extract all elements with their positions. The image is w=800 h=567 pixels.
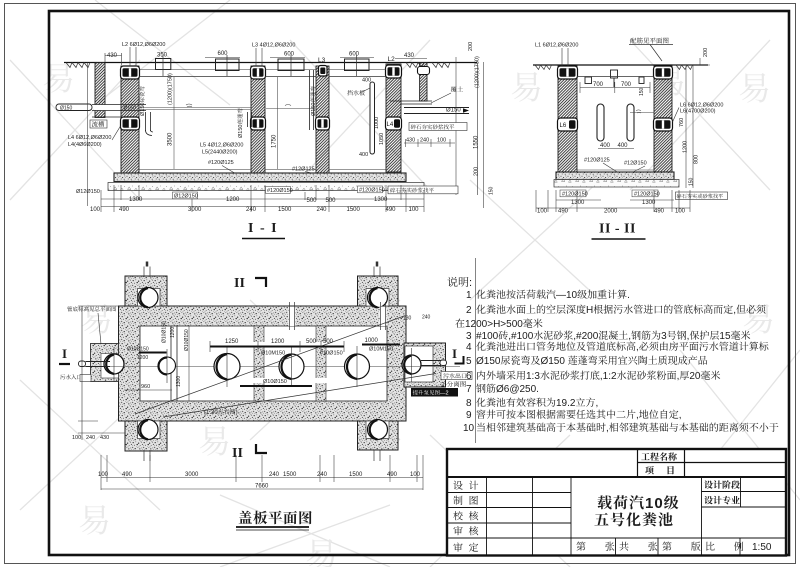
svg-text:1000: 1000 — [374, 117, 380, 129]
svg-text:430: 430 — [406, 138, 415, 144]
svg-text:430: 430 — [107, 53, 118, 59]
svg-text:200: 200 — [703, 48, 709, 57]
svg-text:(1:30: (1:30 — [204, 410, 218, 416]
svg-text:Ø10Ø150: Ø10Ø150 — [162, 321, 168, 343]
svg-text:19.2: 19.2 — [556, 398, 576, 409]
svg-text:Ø12Ø150: Ø12Ø150 — [174, 194, 198, 200]
svg-text:L5(2440Ø200): L5(2440Ø200) — [202, 150, 238, 156]
svg-text:200: 200 — [468, 42, 474, 51]
svg-text:500: 500 — [306, 339, 317, 345]
svg-text:400: 400 — [362, 78, 371, 84]
svg-text:600: 600 — [218, 51, 229, 57]
svg-text:400: 400 — [600, 143, 611, 149]
svg-text:,: , — [636, 342, 639, 353]
svg-text:1550: 1550 — [474, 135, 480, 149]
svg-text:Ø6@250.: Ø6@250. — [496, 384, 539, 395]
svg-text:,#100: ,#100 — [508, 331, 533, 342]
svg-text:350: 350 — [157, 53, 168, 59]
svg-text:3000: 3000 — [188, 207, 202, 213]
svg-text:Ø150: Ø150 — [60, 106, 72, 112]
svg-text:600: 600 — [284, 52, 295, 58]
svg-text:II: II — [232, 446, 243, 461]
svg-text:150: 150 — [489, 186, 495, 195]
svg-text:1500: 1500 — [283, 472, 297, 478]
svg-text:L3: L3 — [318, 57, 326, 64]
svg-text:H: H — [586, 305, 593, 316]
svg-text:240: 240 — [317, 207, 328, 213]
svg-text:800: 800 — [694, 155, 700, 164]
svg-text:100: 100 — [98, 472, 109, 478]
svg-text:,#200: ,#200 — [573, 331, 598, 342]
svg-text:1200: 1200 — [170, 327, 176, 338]
svg-text:,: , — [636, 410, 639, 421]
svg-text:700: 700 — [593, 82, 604, 88]
svg-text:10: 10 — [463, 423, 475, 434]
svg-text:490: 490 — [122, 472, 133, 478]
svg-text:I: I — [62, 346, 67, 361]
svg-text:760: 760 — [679, 118, 685, 127]
svg-text:II: II — [234, 276, 245, 291]
svg-text:#120Ø125: #120Ø125 — [208, 160, 234, 166]
svg-text:.: . — [627, 290, 630, 301]
svg-text:Ø12Ø150: Ø12Ø150 — [76, 189, 100, 195]
svg-text:1500: 1500 — [278, 207, 292, 213]
svg-text:240: 240 — [422, 315, 431, 321]
svg-text:1050: 1050 — [379, 133, 385, 145]
svg-text:490: 490 — [387, 472, 398, 478]
svg-text:490: 490 — [654, 209, 665, 215]
svg-text:6: 6 — [466, 371, 472, 382]
svg-text:,1:2: ,1:2 — [600, 371, 617, 382]
svg-text:,: , — [595, 398, 598, 409]
svg-text:L5 4Ø12,Ø6Ø200: L5 4Ø12,Ø6Ø200 — [200, 143, 243, 149]
svg-text:#120Ø150: #120Ø150 — [634, 192, 660, 198]
svg-text:1200>H>500: 1200>H>500 — [465, 319, 523, 330]
svg-text:#120Ø125: #120Ø125 — [584, 158, 610, 164]
svg-text:100: 100 — [410, 472, 421, 478]
svg-text:Ø150: Ø150 — [446, 108, 461, 114]
svg-text:400: 400 — [618, 143, 629, 149]
svg-text:9: 9 — [466, 410, 472, 421]
svg-text:100: 100 — [675, 209, 686, 215]
svg-text:1200: 1200 — [683, 141, 689, 153]
svg-text:Ø10M150: Ø10M150 — [369, 347, 393, 353]
svg-text:150: 150 — [639, 87, 645, 96]
svg-text:240: 240 — [420, 138, 429, 144]
svg-text:Ø10Ø150: Ø10Ø150 — [127, 347, 149, 353]
svg-text:430: 430 — [100, 435, 109, 441]
svg-text:1300: 1300 — [571, 200, 585, 206]
svg-text:#100: #100 — [476, 331, 499, 342]
svg-text:II - II: II - II — [599, 222, 636, 237]
svg-text:(1200)(1750): (1200)(1750) — [168, 73, 174, 105]
svg-text:,: , — [679, 410, 682, 421]
svg-text:—2: —2 — [440, 391, 449, 397]
svg-text:10: 10 — [645, 495, 664, 512]
svg-text:#120Ø150: #120Ø150 — [562, 192, 588, 198]
svg-text:I - I: I - I — [248, 221, 278, 236]
svg-text:#10Ø150: #10Ø150 — [320, 351, 343, 357]
svg-text:240: 240 — [246, 207, 257, 213]
svg-text:490: 490 — [386, 207, 397, 213]
svg-text:100: 100 — [72, 435, 81, 441]
svg-text:100: 100 — [90, 207, 101, 213]
svg-text:490: 490 — [119, 207, 130, 213]
svg-text:Ø10Ø150: Ø10Ø150 — [263, 379, 287, 385]
svg-text:700: 700 — [621, 82, 632, 88]
svg-text:3: 3 — [661, 331, 667, 342]
svg-text:,: , — [628, 331, 631, 342]
svg-text:2: 2 — [466, 305, 472, 316]
svg-text:Ø150: Ø150 — [311, 103, 317, 116]
svg-text:1000: 1000 — [365, 338, 379, 344]
svg-text:100: 100 — [537, 209, 548, 215]
svg-text:L6: L6 — [560, 123, 567, 129]
svg-text:7660: 7660 — [255, 484, 269, 490]
svg-text:7: 7 — [466, 384, 472, 395]
svg-text:8: 8 — [466, 398, 472, 409]
svg-text:240: 240 — [86, 435, 95, 441]
svg-text:1300: 1300 — [176, 376, 182, 387]
svg-text:400: 400 — [359, 152, 368, 158]
svg-text:—10: —10 — [556, 290, 578, 301]
svg-text:1: 1 — [466, 290, 472, 301]
svg-text:1:50: 1:50 — [752, 542, 772, 553]
svg-text:Ø10M150: Ø10M150 — [261, 351, 285, 357]
svg-text:L6(4700Ø200): L6(4700Ø200) — [680, 109, 716, 115]
svg-text:500: 500 — [307, 198, 318, 204]
svg-text:100: 100 — [437, 138, 446, 144]
svg-text:4: 4 — [466, 342, 472, 353]
svg-text:L2 6Ø12,Ø6Ø200: L2 6Ø12,Ø6Ø200 — [122, 42, 165, 48]
svg-text:,: , — [677, 371, 680, 382]
svg-text:960: 960 — [141, 384, 150, 390]
svg-text:3: 3 — [466, 331, 472, 342]
svg-text:1750: 1750 — [272, 134, 278, 148]
svg-text:Ø10Ø150: Ø10Ø150 — [184, 329, 190, 351]
svg-text:200: 200 — [474, 167, 480, 176]
svg-text:1300: 1300 — [129, 197, 143, 203]
svg-text:5: 5 — [466, 356, 472, 367]
svg-text:3500: 3500 — [168, 132, 174, 146]
svg-text:1500: 1500 — [347, 207, 361, 213]
svg-text:L2: L2 — [388, 56, 396, 63]
svg-text:,: , — [733, 305, 736, 316]
svg-text:150: 150 — [689, 177, 695, 186]
svg-text:2-: 2- — [441, 382, 447, 389]
svg-text:500: 500 — [326, 198, 337, 204]
svg-text:240: 240 — [269, 472, 280, 478]
svg-text:1250: 1250 — [225, 339, 239, 345]
svg-text:3000: 3000 — [185, 472, 199, 478]
svg-text:,: , — [687, 331, 690, 342]
svg-text:1:3: 1:3 — [526, 371, 540, 382]
svg-text:1200: 1200 — [226, 197, 240, 203]
svg-text:500: 500 — [323, 339, 334, 345]
svg-text:2000: 2000 — [604, 209, 618, 215]
svg-text:100: 100 — [409, 207, 420, 213]
svg-text:#12Ø125: #12Ø125 — [292, 167, 315, 173]
svg-text:1300: 1300 — [374, 197, 388, 203]
svg-text:20: 20 — [689, 371, 701, 382]
svg-text:#120Ø150: #120Ø150 — [267, 188, 293, 194]
svg-text:15: 15 — [719, 331, 731, 342]
svg-text:L4 6Ø12,Ø6Ø200: L4 6Ø12,Ø6Ø200 — [68, 135, 111, 141]
svg-text:I: I — [452, 346, 457, 361]
svg-text:Ø150: Ø150 — [238, 125, 244, 138]
svg-text::: : — [469, 277, 472, 289]
svg-text:490: 490 — [558, 209, 569, 215]
svg-text:L1 6Ø12,Ø6Ø200: L1 6Ø12,Ø6Ø200 — [535, 43, 578, 49]
svg-text:): ) — [236, 410, 238, 416]
svg-text:430: 430 — [404, 53, 415, 59]
svg-text:#120Ø150: #120Ø150 — [359, 188, 385, 194]
svg-text:Ø150: Ø150 — [540, 356, 565, 367]
svg-text:L3 4Ø12,Ø6Ø200: L3 4Ø12,Ø6Ø200 — [252, 43, 295, 49]
svg-text:,: , — [606, 423, 609, 434]
svg-text:L4(4Ø6Ø200): L4(4Ø6Ø200) — [68, 142, 102, 148]
svg-text:1200: 1200 — [137, 355, 148, 361]
svg-text:1200: 1200 — [271, 339, 285, 345]
svg-text:1500: 1500 — [349, 472, 363, 478]
svg-text:#12Ø150: #12Ø150 — [624, 161, 647, 167]
svg-text:600: 600 — [349, 52, 360, 58]
svg-text:130: 130 — [403, 316, 412, 322]
svg-text:L4: L4 — [387, 122, 394, 128]
svg-text:Ø150: Ø150 — [476, 356, 501, 367]
svg-text:240: 240 — [317, 472, 328, 478]
